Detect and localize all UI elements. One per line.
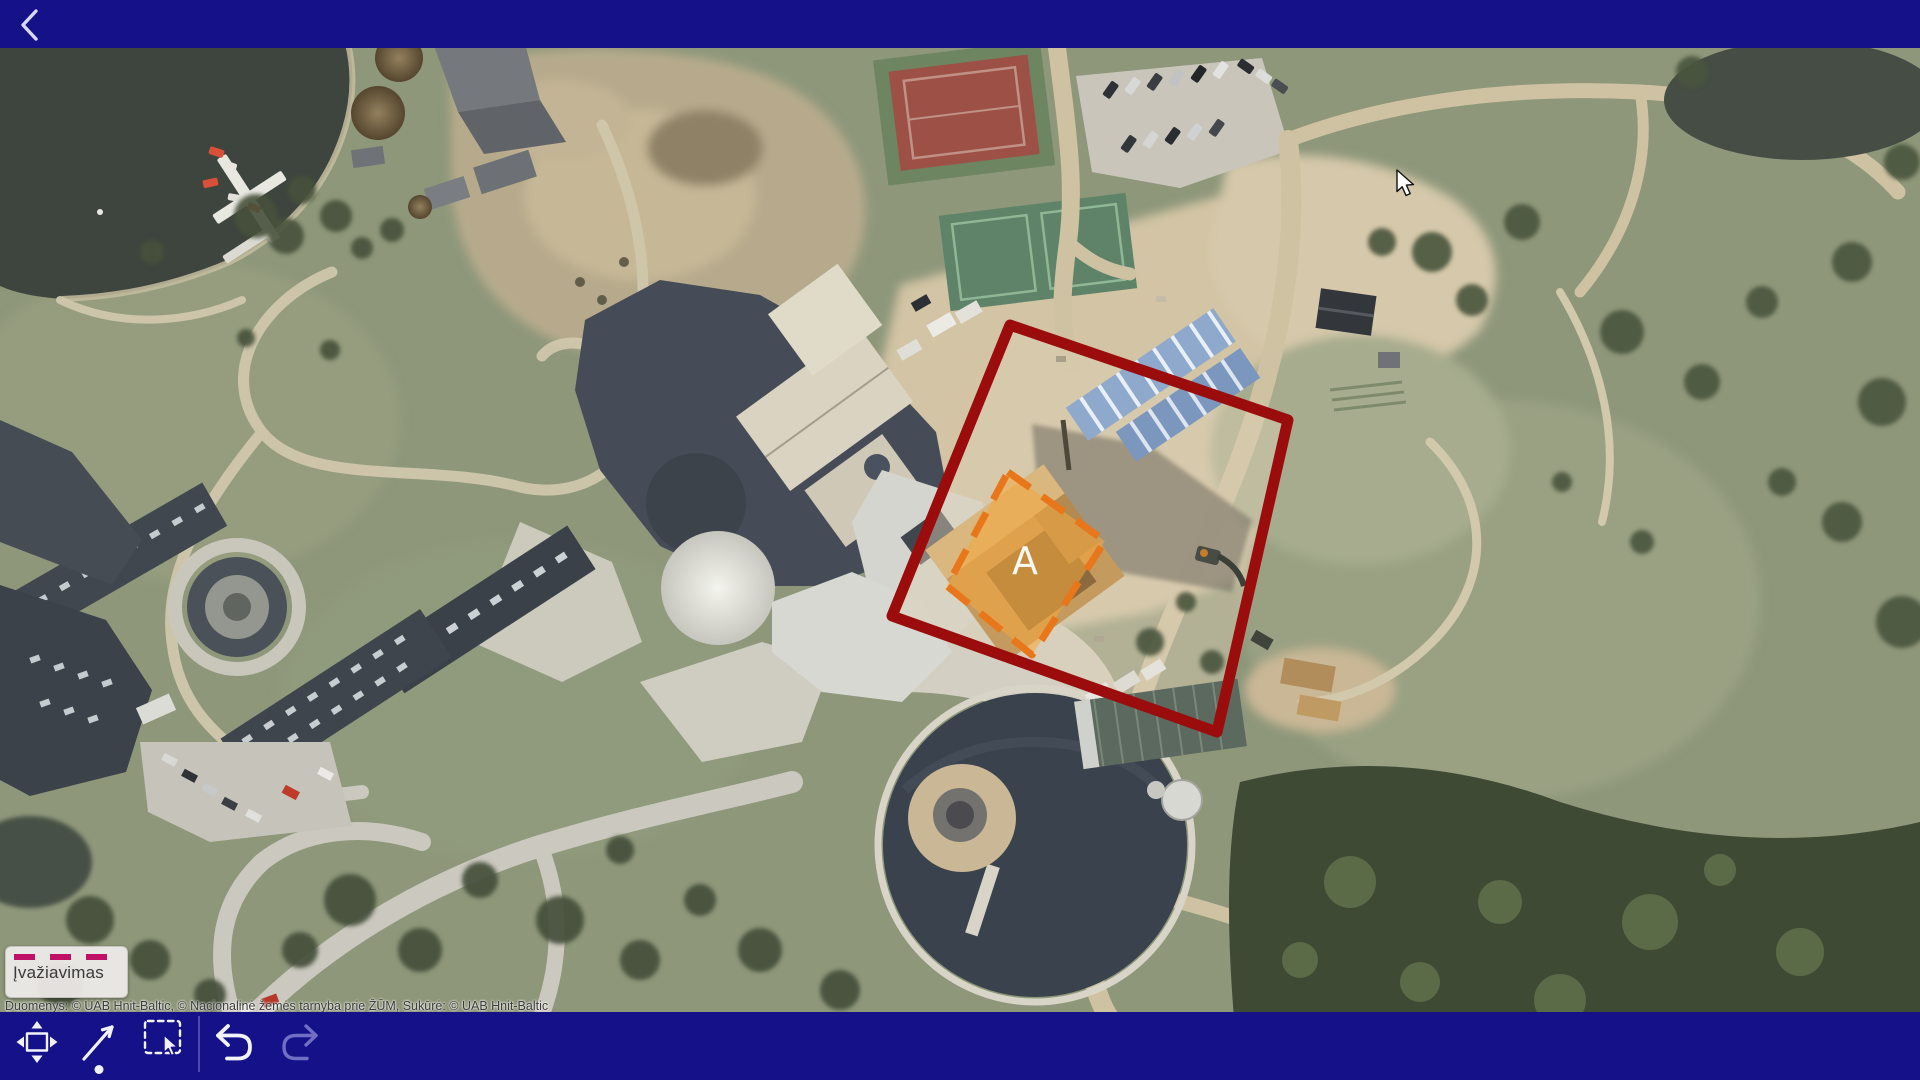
white-dome bbox=[661, 531, 775, 645]
tennis-court bbox=[873, 40, 1055, 186]
top-bar bbox=[0, 0, 1920, 48]
dashed-line-swatch-icon bbox=[14, 954, 117, 960]
draw-line-tool-button[interactable] bbox=[74, 1016, 122, 1076]
toolbar-divider bbox=[198, 1016, 200, 1072]
pan-move-icon bbox=[13, 1016, 61, 1074]
undo-arrow-icon bbox=[212, 1016, 260, 1074]
feature-callout-label: Įvažiavimas bbox=[6, 963, 127, 983]
aerial-map[interactable]: A bbox=[0, 0, 1920, 1080]
map-attribution: Duomenys: © UAB Hnit-Baltic, © Nacionali… bbox=[5, 999, 548, 1013]
mouse-cursor bbox=[1396, 169, 1422, 199]
undo-button[interactable] bbox=[212, 1016, 260, 1076]
marquee-select-tool-button[interactable] bbox=[137, 1016, 185, 1076]
pan-tool-button[interactable] bbox=[13, 1016, 61, 1076]
bottom-toolbar bbox=[0, 1012, 1920, 1080]
chevron-left-icon bbox=[10, 2, 50, 46]
zone-a-label: A bbox=[1012, 539, 1038, 583]
diagonal-arrow-icon bbox=[74, 1016, 122, 1074]
redo-button[interactable] bbox=[274, 1016, 322, 1076]
marquee-select-icon bbox=[137, 1016, 185, 1074]
redo-arrow-icon bbox=[274, 1016, 322, 1074]
feature-callout: Įvažiavimas bbox=[5, 946, 128, 998]
back-button[interactable] bbox=[10, 2, 50, 46]
app-screen: A Įvažiavimas Duomenys: © UAB Hnit-Balti… bbox=[0, 0, 1920, 1080]
